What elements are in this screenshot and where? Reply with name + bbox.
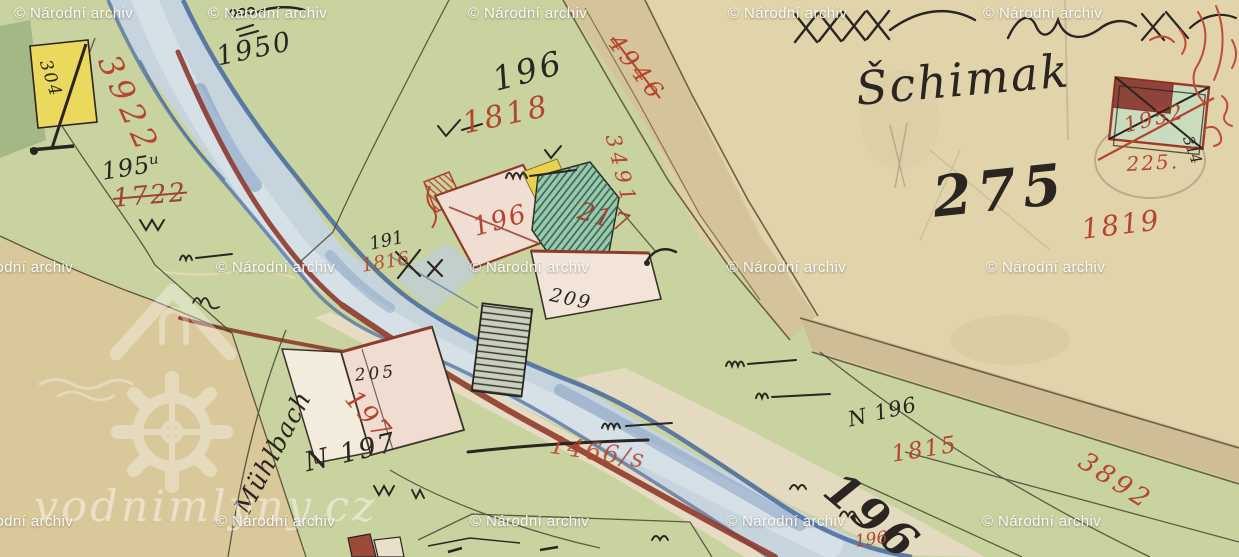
map-scan: 304 3922 1950 195ᵘ 1722 196 1818 191 181… <box>0 0 1239 557</box>
weir <box>472 303 532 396</box>
map-artwork <box>0 0 1239 557</box>
